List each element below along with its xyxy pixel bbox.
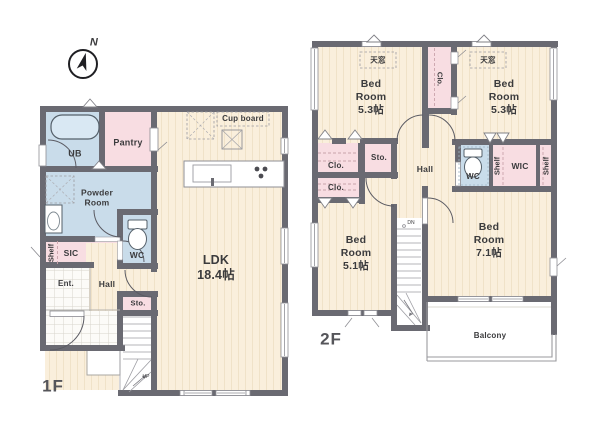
vent-triangle-icon xyxy=(83,99,97,107)
stairs-up-label: UP xyxy=(143,374,150,380)
room-label-shelf-left: Shelf xyxy=(493,157,502,175)
kitchen-door-leaf xyxy=(150,128,158,151)
room-label-clo-strip: Clo. xyxy=(436,72,445,86)
room-label-shelf-right: Shelf xyxy=(542,157,551,175)
vent-triangle-icon xyxy=(367,35,381,42)
room-label-ub: UB xyxy=(68,149,81,160)
wc2-door-leaf xyxy=(456,162,461,186)
room-label-sto2: Sto. xyxy=(371,153,387,163)
room-label-hall1: Hall xyxy=(99,279,115,289)
room-label-clo2: Clo. xyxy=(328,183,344,193)
room-label-bedroom-nw: Bed Room 5.3帖 xyxy=(356,78,387,116)
porch-step xyxy=(87,350,120,375)
bedroom-se-door-leaf xyxy=(423,198,428,224)
room-label-sto1: Sto. xyxy=(131,298,146,307)
stove-icon xyxy=(255,167,260,172)
stairs-down-label: DN xyxy=(407,220,414,226)
entrance-door-leaf xyxy=(50,311,84,317)
room-label-cupboard: Cup board xyxy=(222,114,264,124)
room-label-bedroom-ne: Bed Room 5.3帖 xyxy=(489,78,520,116)
room-label-wc1: WC xyxy=(130,250,145,260)
floor2-title: 2F xyxy=(320,330,342,351)
room-label-bedroom-se: Bed Room 7.1帖 xyxy=(474,221,505,259)
stairs2-floor xyxy=(395,218,423,328)
skylight-label-left: 天窓 xyxy=(370,55,385,64)
room-label-pantry: Pantry xyxy=(113,138,142,149)
floorplan-drawing xyxy=(0,0,600,442)
floor1-title: 1F xyxy=(42,377,64,398)
toilet1-icon xyxy=(128,220,147,229)
toilet2-icon xyxy=(464,149,482,157)
room-label-ent: Ent. xyxy=(58,279,74,289)
room-label-bedroom-sw: Bed Room 5.1帖 xyxy=(341,234,372,272)
room-label-sic: SIC xyxy=(64,248,79,258)
vent-triangle-icon xyxy=(477,35,491,42)
room-label-wc2: WC xyxy=(466,172,480,182)
skylight-label-right: 天窓 xyxy=(480,55,495,64)
compass-north-label: N xyxy=(90,36,98,49)
compass-icon xyxy=(69,50,97,78)
room-label-wic: WIC xyxy=(511,161,528,171)
floorplan-canvas: N UB Pantry Powder Room Cup board LDK 18… xyxy=(0,0,600,442)
room-label-clo1: Clo. xyxy=(328,161,344,171)
bathtub-icon xyxy=(51,115,99,139)
room-label-hall2: Hall xyxy=(417,164,433,174)
genkan-floor xyxy=(88,311,121,346)
balcony-label: Balcony xyxy=(474,331,507,341)
room-label-shelf1: Shelf xyxy=(47,244,56,262)
room-label-powder: Powder Room xyxy=(81,188,113,209)
room-label-ldk: LDK 18.4帖 xyxy=(197,253,235,284)
